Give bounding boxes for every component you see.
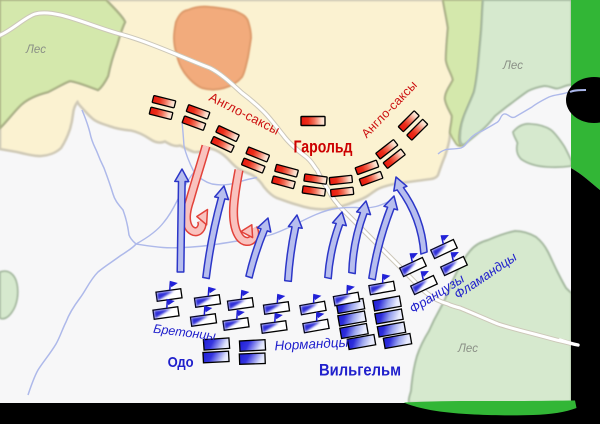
svg-text:Гарольд: Гарольд xyxy=(294,137,353,157)
svg-text:Одо: Одо xyxy=(168,354,194,371)
svg-text:Лес: Лес xyxy=(25,44,46,56)
svg-text:Вильгельм: Вильгельм xyxy=(319,361,401,380)
svg-text:Лес: Лес xyxy=(457,343,478,355)
svg-text:Лес: Лес xyxy=(502,60,523,72)
